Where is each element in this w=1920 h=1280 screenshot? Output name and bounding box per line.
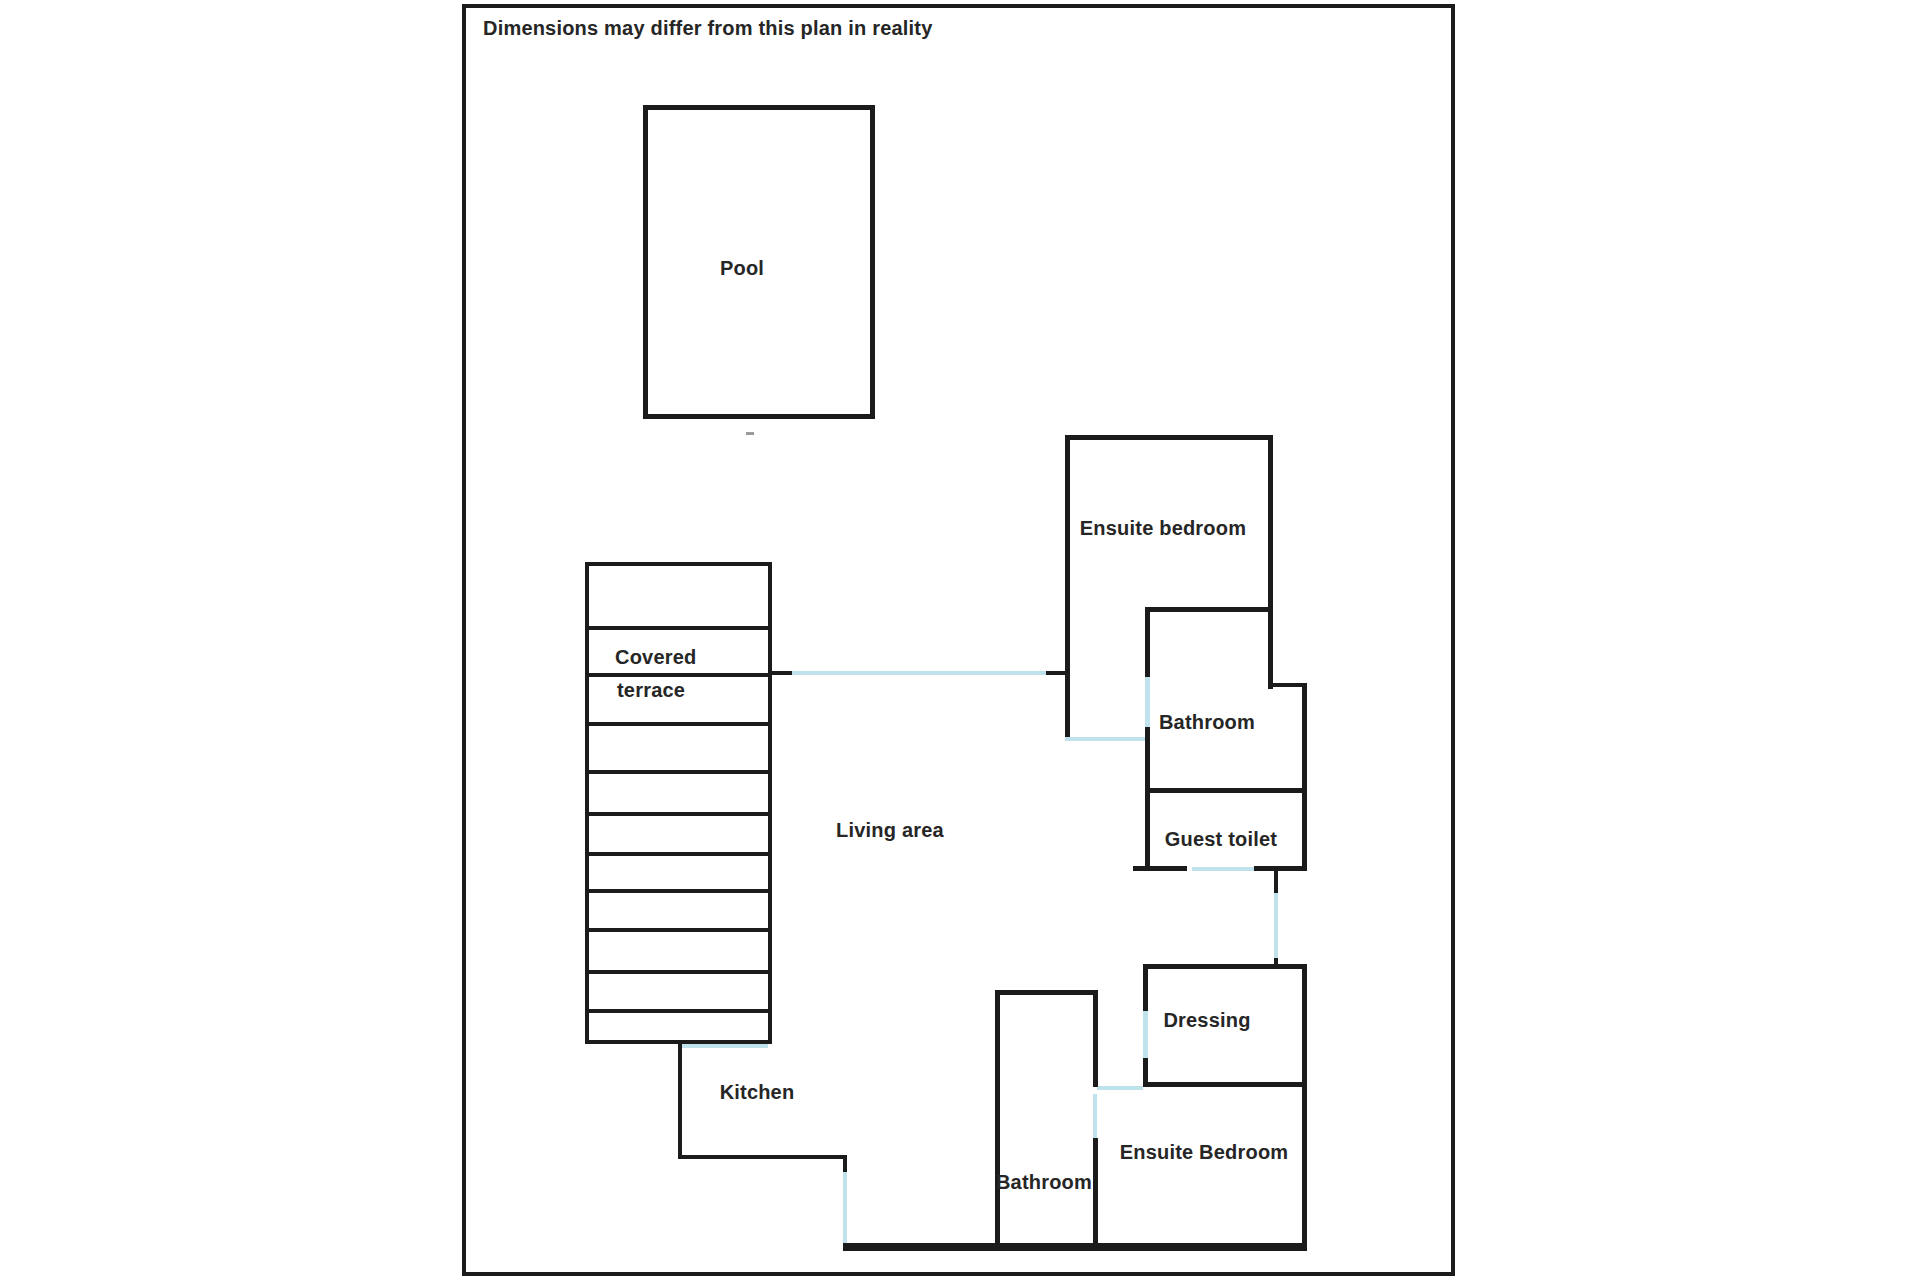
- dressing-wall-right: [1302, 964, 1307, 1087]
- outer-border-top: [462, 4, 1455, 8]
- guest-toilet-wall-right: [1302, 788, 1307, 870]
- covered-terrace-label-line2: terrace: [617, 679, 685, 702]
- terrace-kitchen-opening: [680, 1044, 768, 1048]
- bathroom-top-label: Bathroom: [1159, 711, 1255, 734]
- bathroom-top-door: [1145, 677, 1150, 727]
- bedroom-divider-upper: [1093, 990, 1098, 1087]
- pool-label: Pool: [720, 257, 764, 280]
- pool-mark: [746, 432, 754, 435]
- living-area-label: Living area: [836, 819, 944, 842]
- pool-wall-bottom: [643, 414, 875, 419]
- corridor-opening: [1274, 893, 1278, 960]
- ensuite-top-wall-top: [1065, 435, 1273, 440]
- terrace-slat-1: [585, 626, 772, 630]
- terrace-slat-4: [585, 770, 772, 774]
- guest-toilet-label: Guest toilet: [1165, 828, 1277, 851]
- ensuite-top-wall-right: [1268, 435, 1273, 689]
- outer-border-right: [1451, 4, 1455, 1276]
- terrace-slat-8: [585, 928, 772, 932]
- south-exterior-wall: [843, 1243, 1307, 1251]
- terrace-wall-top: [585, 562, 772, 566]
- kitchen-wall-bottom: [678, 1155, 847, 1159]
- bathroom-top-wall-left-lower: [1145, 727, 1150, 792]
- outer-border-bottom: [462, 1272, 1455, 1276]
- guest-toilet-door: [1192, 867, 1254, 871]
- bathroom-bottom-label: Bathroom: [996, 1171, 1092, 1194]
- terrace-slat-7: [585, 889, 772, 893]
- bedroom-divider-door: [1093, 1094, 1097, 1138]
- bathroom-top-wall-right: [1302, 685, 1307, 792]
- kitchen-stub: [843, 1155, 847, 1172]
- dressing-label: Dressing: [1163, 1009, 1250, 1032]
- bathroom-bottom-wall-left: [995, 990, 1000, 1250]
- dressing-wall-left-upper: [1143, 964, 1148, 1011]
- ensuite-top-wall-left: [1065, 435, 1070, 740]
- bedroom-divider-lower: [1093, 1138, 1098, 1248]
- terrace-slat-10: [585, 1009, 772, 1013]
- terrace-slat-5: [585, 812, 772, 816]
- disclaimer-note: Dimensions may differ from this plan in …: [483, 17, 933, 40]
- kitchen-label: Kitchen: [720, 1081, 795, 1104]
- ensuite-bottom-top-opening: [1097, 1086, 1143, 1090]
- kitchen-opening: [843, 1172, 847, 1245]
- floorplan-canvas: Dimensions may differ from this plan in …: [0, 0, 1920, 1280]
- covered-terrace-label-line1: Covered: [615, 646, 696, 669]
- outer-border-left: [462, 4, 466, 1276]
- ensuite-bedroom-bottom-label: Ensuite Bedroom: [1120, 1141, 1289, 1164]
- guest-toilet-bottom-right: [1254, 866, 1307, 871]
- dressing-wall-bottom: [1143, 1082, 1307, 1087]
- dressing-door: [1143, 1011, 1148, 1058]
- terrace-slat-9: [585, 970, 772, 974]
- bathroom-top-wall-left-upper: [1145, 607, 1150, 677]
- ensuite-top-living-opening: [1065, 737, 1145, 741]
- terrace-passage-opening: [792, 671, 1046, 675]
- terrace-passage-stub-right: [1046, 671, 1065, 675]
- bathroom-bottom-wall-top: [995, 990, 1097, 995]
- terrace-slat-3: [585, 722, 772, 726]
- terrace-passage-stub-left: [772, 671, 792, 675]
- ensuite-bedroom-top-label: Ensuite bedroom: [1080, 517, 1246, 540]
- kitchen-wall-left: [678, 1044, 682, 1159]
- corridor-stub-top: [1274, 871, 1278, 893]
- bathroom-top-wall-bottom: [1145, 788, 1307, 793]
- pool-wall-top: [643, 105, 875, 110]
- ensuite-top-bathroom-divider: [1145, 607, 1273, 612]
- pool-wall-left: [643, 105, 648, 419]
- ensuite-bottom-wall-right: [1302, 1082, 1307, 1250]
- pool-wall-right: [870, 105, 875, 419]
- terrace-slat-6: [585, 852, 772, 856]
- dressing-wall-top: [1143, 964, 1307, 969]
- guest-toilet-bottom-left: [1133, 866, 1187, 871]
- terrace-slat-2: [585, 673, 772, 677]
- guest-toilet-wall-left: [1145, 788, 1150, 870]
